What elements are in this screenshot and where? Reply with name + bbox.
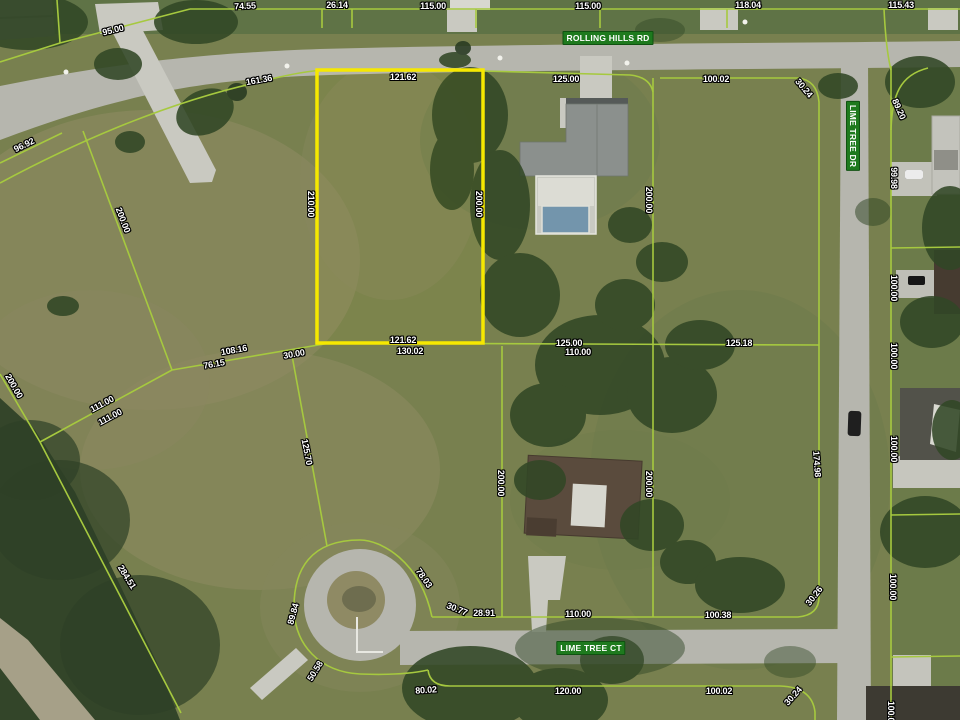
car-on-road — [848, 411, 862, 436]
black-car — [908, 276, 925, 285]
parcel-map[interactable]: ROLLING HILLS RDLIME TREE DRLIME TREE CT… — [0, 0, 960, 720]
bottom-right-house — [866, 686, 960, 720]
satellite-layer — [0, 0, 960, 720]
swimming-pool — [542, 206, 589, 233]
highlighted-lot-boundary[interactable] — [317, 70, 483, 343]
lime-tree-dr-road — [837, 59, 871, 720]
